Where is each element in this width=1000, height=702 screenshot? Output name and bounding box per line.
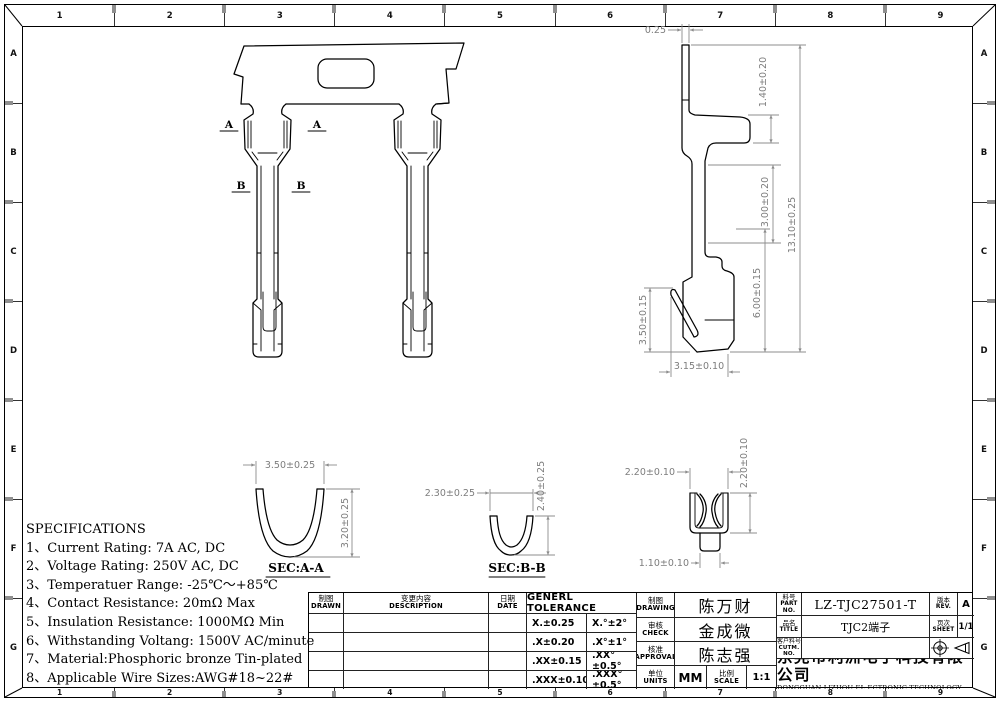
part-no-value: LZ-TJC27501-T	[814, 597, 916, 612]
title-label: 品名 TITLE	[776, 615, 801, 637]
tolerance-header: GENERL TOLERANCE	[526, 593, 636, 613]
tolerance-cell: X.±0.25	[526, 613, 586, 632]
approval-name: 陈志强	[698, 642, 752, 666]
carrier-strip-outline	[234, 43, 464, 104]
tolerance-title: GENERL TOLERANCE	[527, 593, 636, 613]
part-number: LZ-TJC27501-T	[801, 593, 929, 615]
extension-line	[514, 516, 555, 555]
spec-item: 4、Contact Resistance: 20mΩ Max	[26, 595, 318, 614]
carrier-strip-hole	[318, 59, 374, 88]
title-value: TJC2端子	[841, 619, 890, 635]
sheet-cn: 页次	[933, 620, 955, 627]
section-bb-inner	[497, 516, 527, 547]
drawing-signature: 陈万财	[674, 593, 776, 617]
tolerance-cell: .X°±1°	[586, 632, 636, 651]
part-title: TJC2端子	[801, 615, 929, 637]
tolerance-value: X.±0.25	[532, 618, 574, 629]
tolerance-value: .X±0.20	[532, 637, 574, 648]
drawn-en: DRAWN	[311, 603, 341, 610]
clip-section-view: 2.20±0.10 2.20±0.10 1.10±0.10	[625, 438, 757, 569]
revision-cell	[343, 613, 488, 632]
title-cn: 品名	[780, 620, 799, 627]
sheet-en: SHEET	[933, 627, 955, 633]
drawing-en: DRAWING	[636, 605, 674, 612]
scale-en: SCALE	[714, 678, 739, 685]
tolerance-cell: X.°±2°	[586, 613, 636, 632]
drawing-label: 制图 DRAWING	[636, 593, 674, 617]
cut-label-a: A	[312, 119, 322, 131]
spec-item: 3、Temperatuer Range: -25℃～+85℃	[26, 577, 318, 596]
section-bb-view: 2.30±0.25 2.40±0.25 SEC:B-B	[425, 461, 555, 577]
check-en: CHECK	[642, 630, 669, 637]
rev-value: A	[957, 593, 974, 615]
drawing-name: 陈万财	[698, 593, 752, 617]
tolerance-value: .X°±1°	[592, 637, 627, 648]
revision-cell	[488, 670, 526, 689]
sheet-label: 页次 SHEET	[929, 615, 957, 637]
clip-spring-right	[712, 494, 721, 527]
units-val: MM	[679, 671, 703, 685]
rev-val: A	[962, 599, 970, 610]
projection-symbol-cell	[929, 637, 974, 658]
revision-cell	[343, 670, 488, 689]
dim-text: 3.50±0.25	[265, 460, 315, 471]
revision-cell	[309, 632, 343, 651]
company-name-cn: 东莞市利洲电子科技有限公司	[777, 658, 974, 684]
scale-val: 1:1	[753, 672, 771, 683]
dim-text: 1.40±0.20	[758, 57, 769, 107]
spec-item: 8、Applicable Wire Sizes:AWG#18~22#	[26, 670, 318, 689]
cut-label-a: A	[224, 119, 234, 131]
dim-text: 2.40±0.25	[536, 461, 547, 511]
tolerance-cell: .XXX±0.10	[526, 670, 586, 689]
side-view-dimensions: 0.25 1.40±0.20 3.00±0.20 13.10±0.25 6.00…	[638, 24, 806, 377]
revision-cell	[488, 613, 526, 632]
extension-line	[682, 24, 689, 43]
dim-text: 2.20±0.10	[739, 438, 750, 488]
approval-en: APPROVAL	[636, 654, 674, 661]
dim-text: 0.25	[645, 25, 666, 36]
tolerance-cell: .XX±0.15	[526, 651, 586, 670]
description-en: DESCRIPTION	[389, 603, 443, 610]
tolerance-cell: .X±0.20	[526, 632, 586, 651]
spec-item: 7、Material:Phosphoric bronze Tin-plated	[26, 651, 318, 670]
company-name-en: DONGGUAN LIZHOU EL ECTRONIC TECHNOLOGY C…	[777, 685, 974, 689]
check-signature: 金成微	[674, 617, 776, 641]
cut-label-b: B	[297, 180, 306, 192]
tolerance-value: .XX±0.15	[532, 656, 582, 667]
extension-line	[690, 468, 728, 489]
customer-no-value	[801, 637, 929, 658]
company-block: 东莞市利洲电子科技有限公司 DONGGUAN LIZHOU EL ECTRONI…	[776, 658, 974, 689]
tolerance-value: X.°±2°	[592, 618, 627, 629]
revision-cell	[488, 632, 526, 651]
spec-item: 2、Voltage Rating: 250V AC, DC	[26, 558, 318, 577]
tolerance-cell: .XXX°±0.5°	[586, 670, 636, 689]
date-en: DATE	[497, 603, 517, 610]
date-header: 日期 DATE	[488, 593, 526, 613]
clip-spring-left	[697, 494, 706, 527]
units-value: MM	[674, 665, 706, 689]
specifications-title: SPECIFICATIONS	[26, 521, 318, 540]
dim-text: 3.15±0.10	[674, 361, 724, 372]
drawing-sheet: 1 2 3 4 5 6 7 8 9 1 2 3 4 5 6 7 8 9 A B …	[0, 0, 1000, 702]
customer-cn: 客户料号	[777, 639, 801, 646]
rev-cn: 版本	[936, 597, 951, 604]
dim-text: 6.00±0.15	[752, 268, 763, 318]
approval-label: 核准 APPROVAL	[636, 641, 674, 665]
clip-tab	[700, 533, 720, 551]
tolerance-value: .XXX°±0.5°	[592, 670, 636, 689]
side-profile-right	[689, 45, 750, 352]
dim-text: 2.20±0.10	[625, 467, 675, 478]
spec-item: 1、Current Rating: 7A AC, DC	[26, 540, 318, 559]
extension-line	[730, 493, 757, 533]
check-label: 审核 CHECK	[636, 617, 674, 641]
tolerance-value: .XXX±0.10	[532, 675, 586, 686]
revision-cell	[488, 651, 526, 670]
third-angle-projection-icon	[930, 638, 974, 658]
rev-en: REV.	[936, 604, 951, 610]
extension-line	[490, 489, 533, 511]
revision-cell	[343, 632, 488, 651]
side-detail-lines	[682, 100, 734, 320]
revision-cell	[309, 651, 343, 670]
check-name: 金成微	[698, 618, 752, 642]
title-block: 制图 DRAWN 变更内容 DESCRIPTION 日期 DATE GENERL…	[308, 592, 973, 688]
dim-text: 3.00±0.20	[760, 177, 771, 227]
units-label: 单位 UNITS	[636, 665, 674, 689]
dim-text: 2.30±0.25	[425, 488, 475, 499]
tolerance-value: .XX°±0.5°	[592, 651, 636, 670]
revision-cell	[309, 613, 343, 632]
spec-item: 5、Insulation Resistance: 1000MΩ Min	[26, 614, 318, 633]
part-no-en: PART NO.	[777, 601, 801, 614]
tolerance-cell: .XX°±0.5°	[586, 651, 636, 670]
extension-line	[748, 115, 779, 143]
specifications-block: SPECIFICATIONS 1、Current Rating: 7A AC, …	[26, 521, 318, 688]
section-bb-label: SEC:B-B	[488, 561, 545, 575]
extension-line	[700, 553, 720, 568]
scale-value: 1:1	[746, 665, 776, 689]
revision-cell	[309, 670, 343, 689]
description-header: 变更内容 DESCRIPTION	[343, 593, 488, 613]
side-view: 0.25 1.40±0.20 3.00±0.20 13.10±0.25 6.00…	[638, 24, 806, 377]
title-en: TITLE	[780, 627, 799, 633]
part-no-cn: 料号	[777, 594, 801, 601]
customer-en: CUTM. NO.	[777, 645, 801, 657]
dim-text: 1.10±0.10	[639, 558, 689, 569]
sheet-value: 1/1	[957, 615, 974, 637]
carrier-strip-bottom-edges	[241, 103, 449, 104]
scale-label: 比例 SCALE	[706, 665, 746, 689]
rev-label: 版本 REV.	[929, 593, 957, 615]
dim-text: 3.20±0.25	[340, 498, 351, 548]
cut-label-b: B	[237, 180, 246, 192]
terminal-left	[244, 104, 291, 357]
approval-signature: 陈志强	[674, 641, 776, 665]
customer-no-label: 客户料号 CUTM. NO.	[776, 637, 801, 658]
drawn-header: 制图 DRAWN	[309, 593, 343, 613]
revision-cell	[343, 651, 488, 670]
lance-barb	[671, 290, 698, 337]
spec-item: 6、Withstanding Voltang: 1500V AC/minute	[26, 633, 318, 652]
section-cut-marks: A A B B	[220, 119, 326, 192]
dim-text: 3.50±0.15	[638, 295, 649, 345]
part-no-label: 料号 PART NO.	[776, 593, 801, 615]
units-en: UNITS	[643, 678, 667, 685]
front-view: A A B B	[220, 43, 464, 357]
dim-text: 13.10±0.25	[787, 197, 798, 253]
terminal-right	[394, 104, 441, 357]
sheet-val: 1/1	[959, 622, 974, 632]
